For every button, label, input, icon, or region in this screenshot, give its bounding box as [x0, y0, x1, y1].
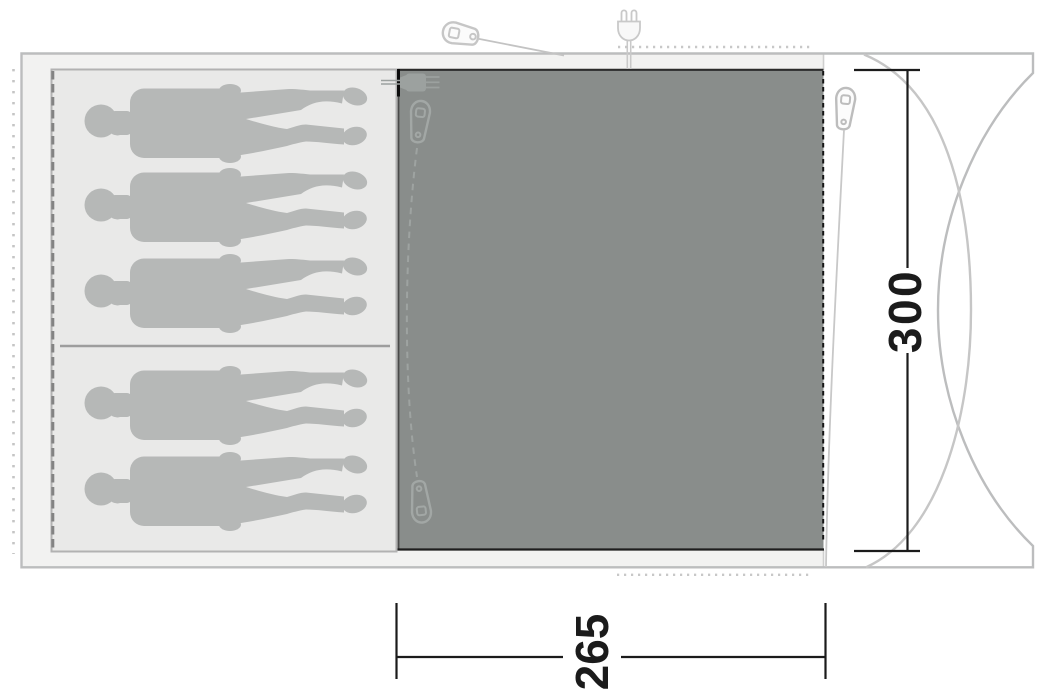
svg-text:300: 300 [879, 269, 931, 353]
svg-text:265: 265 [566, 614, 618, 691]
